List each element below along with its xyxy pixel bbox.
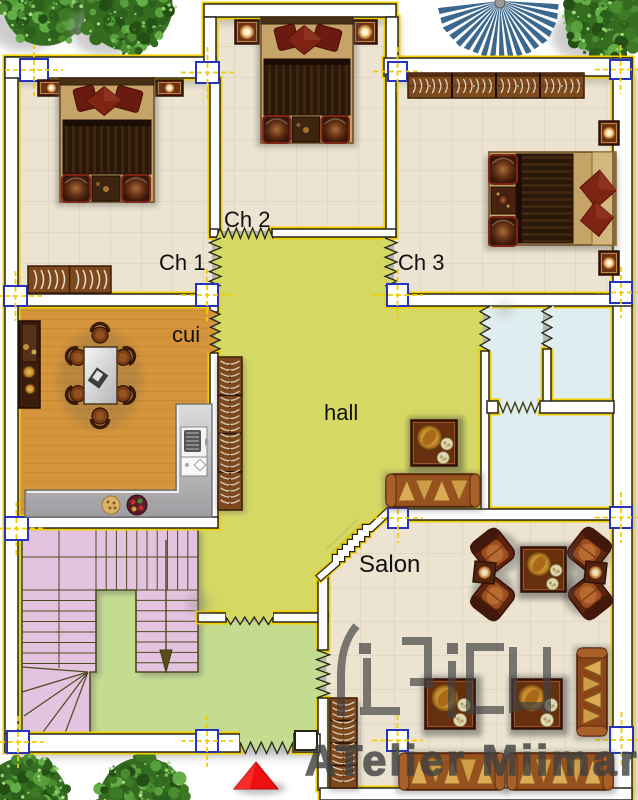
- svg-text:Ch 2: Ch 2: [224, 207, 270, 232]
- svg-text:hall: hall: [324, 400, 358, 425]
- svg-text:Ch 3: Ch 3: [398, 250, 444, 275]
- svg-text:ATelier Miimar: ATelier Miimar: [305, 737, 638, 785]
- svg-text:Salon: Salon: [359, 551, 420, 578]
- svg-text:Ch 1: Ch 1: [159, 250, 205, 275]
- svg-text:cui: cui: [172, 322, 200, 347]
